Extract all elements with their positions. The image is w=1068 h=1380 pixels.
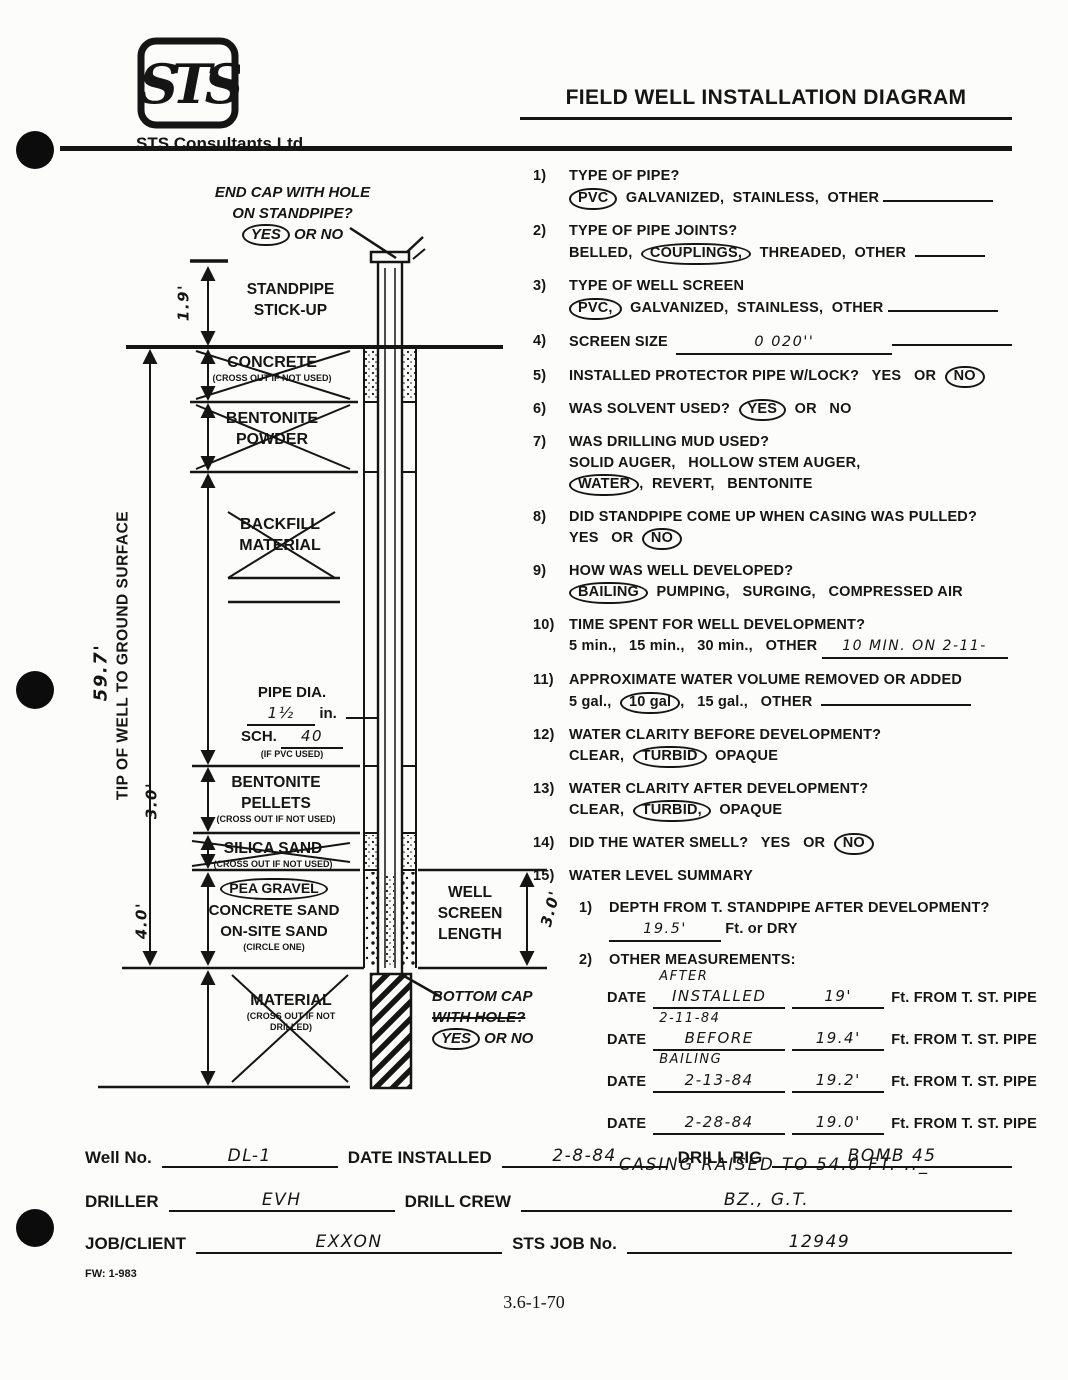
q8-title: DID STANDPIPE COME UP WHEN CASING WAS PU… [569, 507, 1063, 528]
ws-item1-number: 1) [579, 898, 609, 942]
measurement-row-4: DATE 2-28-84 19.0' Ft. FROM T. ST. PIPE [607, 1112, 1063, 1135]
q10-options: 5 min., 15 min., 30 min., OTHER 10 MIN. … [569, 636, 1063, 659]
q1-rest: GALVANIZED, STAINLESS, OTHER [626, 190, 879, 206]
pellets-note: (CROSS OUT IF NOT USED) [196, 814, 356, 825]
q13-pre: CLEAR, [569, 802, 624, 818]
material-note1: (CROSS OUT IF NOT [228, 1011, 354, 1022]
row4-depth-handwritten: 19.0' [792, 1112, 884, 1135]
question-14: 14)DID THE WATER SMELL? YES OR NO [533, 833, 1063, 855]
punch-hole [16, 671, 54, 709]
stickup-line1: STANDPIPE [228, 279, 353, 300]
driller-label: DRILLER [85, 1192, 159, 1212]
drill-rig-value-handwritten: BOMB 45 [772, 1146, 1012, 1168]
material-note2: DRILLED) [228, 1022, 354, 1033]
q2-options: BELLED, COUPLINGS, THREADED, OTHER [569, 242, 1063, 265]
q14-pre: YES OR [761, 835, 825, 851]
row3-date-entry: 2-13-84 [653, 1070, 785, 1093]
q12-title: WATER CLARITY BEFORE DEVELOPMENT? [569, 725, 1063, 746]
pellets-line1: BENTONITE [196, 772, 356, 793]
pea-gravel-circled: PEA GRAVEL [220, 878, 327, 900]
concrete-label: CONCRETE (CROSS OUT IF NOT USED) [196, 352, 348, 384]
sts-logo: STS [136, 36, 240, 135]
row4-main-handwritten: 2-28-84 [685, 1113, 754, 1131]
q2-title: TYPE OF PIPE JOINTS? [569, 221, 1063, 242]
q11-other-blank [821, 691, 971, 706]
q14-number: 14) [533, 833, 569, 855]
row1-depth-handwritten: 19' [792, 986, 884, 1009]
q5-label: INSTALLED PROTECTOR PIPE W/LOCK? [569, 368, 859, 384]
q11-title: APPROXIMATE WATER VOLUME REMOVED OR ADDE… [569, 670, 1063, 691]
q8-number: 8) [533, 507, 569, 550]
row1-suffix: Ft. FROM T. ST. PIPE [891, 988, 1037, 1009]
q1-number: 1) [533, 166, 569, 210]
date-installed-label: DATE INSTALLED [348, 1148, 492, 1168]
pipe-dia-label: PIPE DIA. [228, 682, 356, 703]
question-5: 5)INSTALLED PROTECTOR PIPE W/LOCK? YES O… [533, 366, 1063, 388]
silica-note: (CROSS OUT IF NOT USED) [192, 859, 354, 870]
backfill-line1: BACKFILL [212, 514, 348, 535]
well-no-label: Well No. [85, 1148, 152, 1168]
pellets-line2: PELLETS [196, 793, 356, 814]
q13-number: 13) [533, 779, 569, 822]
measurement-row-2: DATE 2-11-84BEFOREBAILING 19.4' Ft. FROM… [607, 1028, 1063, 1051]
end-cap-line2: ON STANDPIPE? [190, 203, 395, 224]
gravel-note: (CIRCLE ONE) [188, 942, 360, 953]
gravel-option3: ON-SITE SAND [188, 921, 360, 942]
q6-line: WAS SOLVENT USED? YES OR NO [569, 399, 1063, 421]
pipe-dia-value-line: 1½ in. [228, 703, 356, 726]
q7-options: WATER, REVERT, BENTONITE [569, 474, 1063, 496]
row3-depth-handwritten: 19.2' [792, 1070, 884, 1093]
question-7: 7)WAS DRILLING MUD USED?SOLID AUGER, HOL… [533, 432, 1063, 496]
bottom-cap-yes-circled: YES [432, 1028, 480, 1050]
company-name: STS Consultants Ltd. [136, 134, 308, 154]
bottom-cap-line2-struck: WITH HOLE? [432, 1007, 577, 1028]
material-name: MATERIAL [228, 990, 354, 1011]
q4-value-handwritten: 0 020'' [676, 332, 892, 355]
q2-number: 2) [533, 221, 569, 265]
drill-rig-label: DRILL RIG [678, 1148, 763, 1168]
screen-line1: WELL [422, 882, 518, 903]
q12-number: 12) [533, 725, 569, 768]
q4-label: SCREEN SIZE [569, 334, 668, 350]
ws-item1-value-handwritten: 19.5' [609, 919, 721, 942]
ws-item1-answer: 19.5' Ft. or DRY [609, 919, 1063, 942]
question-4: 4)SCREEN SIZE 0 020'' [533, 331, 1063, 355]
question-9: 9)HOW WAS WELL DEVELOPED?BAILING PUMPING… [533, 561, 1063, 604]
job-client-label: JOB/CLIENT [85, 1234, 186, 1254]
end-cap-line1: END CAP WITH HOLE [190, 182, 395, 203]
form-code: FW: 1-983 [85, 1268, 137, 1280]
q13-circled-option: TURBID, [633, 800, 711, 822]
bottom-cap-line1: BOTTOM CAP [432, 986, 577, 1007]
q12-pre: CLEAR, [569, 748, 624, 764]
q13-title: WATER CLARITY AFTER DEVELOPMENT? [569, 779, 1063, 800]
q9-circled-option: BAILING [569, 582, 648, 604]
row4-date-label: DATE [607, 1114, 646, 1135]
q7-number: 7) [533, 432, 569, 496]
q10-title: TIME SPENT FOR WELL DEVELOPMENT? [569, 615, 1063, 636]
row2-date-label: DATE [607, 1030, 646, 1051]
q6-number: 6) [533, 399, 569, 421]
q12-options: CLEAR, TURBID OPAQUE [569, 746, 1063, 768]
job-client-value-handwritten: EXXON [196, 1232, 502, 1254]
q10-number: 10) [533, 615, 569, 659]
pipe-sch-line: SCH. 40 [228, 726, 356, 749]
q2-other-blank [915, 242, 985, 257]
q9-number: 9) [533, 561, 569, 604]
row3-date-label: DATE [607, 1072, 646, 1093]
q2-pre: BELLED, [569, 245, 632, 261]
stickup-line2: STICK-UP [228, 300, 353, 321]
q12-rest: OPAQUE [715, 748, 778, 764]
q3-circled-option: PVC, [569, 298, 622, 320]
bottom-cap-label: BOTTOM CAP WITH HOLE? YES OR NO [432, 986, 577, 1050]
q7-rest: , REVERT, BENTONITE [639, 476, 812, 492]
row2-below-handwritten: BAILING [659, 1049, 722, 1070]
row2-date-entry: 2-11-84BEFOREBAILING [653, 1028, 785, 1051]
page-code: 3.6-1-70 [0, 1292, 1068, 1313]
material-label: MATERIAL (CROSS OUT IF NOT DRILLED) [228, 990, 354, 1033]
punch-hole [16, 131, 54, 169]
bentonite-powder-line1: BENTONITE [196, 408, 348, 429]
q11-number: 11) [533, 670, 569, 714]
gravel-option-circled: PEA GRAVEL [188, 878, 360, 900]
ws-item2: 2)OTHER MEASUREMENTS: [579, 950, 1063, 971]
question-6: 6)WAS SOLVENT USED? YES OR NO [533, 399, 1063, 421]
standpipe-stickup-label: STANDPIPE STICK-UP [228, 279, 353, 321]
bentonite-pellets-label: BENTONITE PELLETS (CROSS OUT IF NOT USED… [196, 772, 356, 825]
pipe-sch-value: 40 [281, 726, 343, 749]
q11-circled-option: 10 gal [620, 692, 680, 714]
row4-date-entry: 2-28-84 [653, 1112, 785, 1135]
question-10: 10)TIME SPENT FOR WELL DEVELOPMENT?5 min… [533, 615, 1063, 659]
q1-options: PVC GALVANIZED, STAINLESS, OTHER [569, 187, 1063, 210]
q14-line: DID THE WATER SMELL? YES OR NO [569, 833, 1063, 855]
footer-row-1: Well No. DL-1 DATE INSTALLED 2-8-84 DRIL… [85, 1146, 1012, 1168]
ws-item1-suffix: Ft. or DRY [721, 921, 798, 937]
q6-rest: OR NO [795, 401, 852, 417]
bottom-cap-or-no: OR NO [480, 1030, 533, 1047]
question-8: 8)DID STANDPIPE COME UP WHEN CASING WAS … [533, 507, 1063, 550]
silica-sand-label: SILICA SAND (CROSS OUT IF NOT USED) [192, 838, 354, 870]
concrete-name: CONCRETE [196, 352, 348, 373]
drill-crew-value-handwritten: BZ., G.T. [521, 1190, 1012, 1212]
q5-pre: YES OR [872, 368, 936, 384]
q9-rest: PUMPING, SURGING, COMPRESSED AIR [656, 584, 962, 600]
question-2: 2)TYPE OF PIPE JOINTS?BELLED, COUPLINGS,… [533, 221, 1063, 265]
q12-circled-option: TURBID [633, 746, 707, 768]
question-13: 13)WATER CLARITY AFTER DEVELOPMENT?CLEAR… [533, 779, 1063, 822]
driller-value-handwritten: EVH [169, 1190, 395, 1212]
q1-circled-option: PVC [569, 188, 617, 210]
pipe-spec-label: PIPE DIA. 1½ in. SCH. 40 (IF PVC USED) [228, 682, 356, 760]
row4-suffix: Ft. FROM T. ST. PIPE [891, 1114, 1037, 1135]
q13-rest: OPAQUE [719, 802, 782, 818]
bentonite-powder-line2: POWDER [196, 429, 348, 450]
q3-rest: GALVANIZED, STAINLESS, OTHER [630, 300, 883, 316]
q11-options: 5 gal., 10 gal, 15 gal., OTHER [569, 691, 1063, 714]
ws-item1: 1)DEPTH FROM T. STANDPIPE AFTER DEVELOPM… [579, 898, 1063, 942]
q8-circled-option: NO [642, 528, 682, 550]
drill-crew-label: DRILL CREW [405, 1192, 511, 1212]
question-11: 11)APPROXIMATE WATER VOLUME REMOVED OR A… [533, 670, 1063, 714]
silica-name: SILICA SAND [192, 838, 354, 859]
row3-suffix: Ft. FROM T. ST. PIPE [891, 1072, 1037, 1093]
tip-of-well-dimension: 59.7' [91, 640, 112, 706]
footer-row-2: DRILLER EVH DRILL CREW BZ., G.T. [85, 1190, 1012, 1212]
q6-label: WAS SOLVENT USED? [569, 401, 730, 417]
q10-value-handwritten: 10 MIN. ON 2-11- [822, 636, 1008, 659]
q3-number: 3) [533, 276, 569, 320]
q15-label: WATER LEVEL SUMMARY [569, 866, 1063, 887]
end-cap-question: END CAP WITH HOLE ON STANDPIPE? YES OR N… [190, 182, 395, 246]
row1-date-label: DATE [607, 988, 646, 1009]
pipe-note: (IF PVC USED) [228, 749, 356, 760]
question-12: 12)WATER CLARITY BEFORE DEVELOPMENT?CLEA… [533, 725, 1063, 768]
sts-job-label: STS JOB No. [512, 1234, 617, 1254]
q5-number: 5) [533, 366, 569, 388]
well-no-value-handwritten: DL-1 [162, 1146, 338, 1168]
q9-title: HOW WAS WELL DEVELOPED? [569, 561, 1063, 582]
pellets-dimension: 3.0' [142, 771, 163, 831]
measurement-row-1: DATE AFTERINSTALLED 19' Ft. FROM T. ST. … [607, 986, 1063, 1009]
questions-panel: 1)TYPE OF PIPE?PVC GALVANIZED, STAINLESS… [533, 166, 1063, 1175]
q7-line2: SOLID AUGER, HOLLOW STEM AUGER, [569, 453, 1063, 474]
q4-line: SCREEN SIZE 0 020'' [569, 331, 1063, 355]
header-rule [60, 146, 1012, 151]
gravel-dimension: 4.0' [132, 891, 153, 951]
q9-options: BAILING PUMPING, SURGING, COMPRESSED AIR [569, 582, 1063, 604]
row2-depth-handwritten: 19.4' [792, 1028, 884, 1051]
ws-item2-number: 2) [579, 950, 609, 971]
measurement-row-3: DATE 2-13-84 19.2' Ft. FROM T. ST. PIPE [607, 1070, 1063, 1093]
scanned-form-page: STS STS Consultants Ltd. FIELD WELL INST… [0, 0, 1068, 1380]
q6-circled-option: YES [739, 399, 787, 421]
q3-other-blank [888, 297, 998, 312]
sts-job-value-handwritten: 12949 [627, 1232, 1012, 1254]
q3-title: TYPE OF WELL SCREEN [569, 276, 1063, 297]
row2-above-handwritten: 2-11-84 [659, 1008, 720, 1029]
screen-line2: SCREEN [422, 903, 518, 924]
row2-suffix: Ft. FROM T. ST. PIPE [891, 1030, 1037, 1051]
q3-options: PVC, GALVANIZED, STAINLESS, OTHER [569, 297, 1063, 320]
backfill-label: BACKFILL MATERIAL [212, 514, 348, 556]
end-cap-answer: YES OR NO [190, 224, 395, 246]
q1-other-blank [883, 187, 993, 202]
row1-date-entry: AFTERINSTALLED [653, 986, 785, 1009]
q8-options: YES OR NO [569, 528, 1063, 550]
q7-title: WAS DRILLING MUD USED? [569, 432, 1063, 453]
q13-options: CLEAR, TURBID, OPAQUE [569, 800, 1063, 822]
row1-main-handwritten: INSTALLED [672, 987, 766, 1005]
q14-label: DID THE WATER SMELL? [569, 835, 748, 851]
page-title: FIELD WELL INSTALLATION DIAGRAM [520, 86, 1012, 120]
end-cap-or-no: OR NO [290, 226, 343, 243]
concrete-note: (CROSS OUT IF NOT USED) [196, 373, 348, 384]
backfill-line2: MATERIAL [212, 535, 348, 556]
question-15: 15)WATER LEVEL SUMMARY [533, 866, 1063, 887]
punch-hole [16, 1209, 54, 1247]
q14-circled-option: NO [834, 833, 874, 855]
question-3: 3)TYPE OF WELL SCREENPVC, GALVANIZED, ST… [533, 276, 1063, 320]
date-installed-value-handwritten: 2-8-84 [502, 1146, 668, 1168]
row2-main-handwritten: BEFORE [685, 1029, 754, 1047]
screen-line3: LENGTH [422, 924, 518, 945]
gravel-option2: CONCRETE SAND [188, 900, 360, 921]
q10-pre: 5 min., 15 min., 30 min., OTHER [569, 638, 817, 654]
q11-rest: , 15 gal., OTHER [680, 694, 812, 710]
bentonite-powder-label: BENTONITE POWDER [196, 408, 348, 450]
row3-main-handwritten: 2-13-84 [685, 1071, 754, 1089]
pipe-dia-value: 1½ [247, 703, 315, 726]
pipe-sch-label: SCH. [241, 728, 281, 745]
q2-rest: THREADED, OTHER [760, 245, 907, 261]
q5-circled-option: NO [945, 366, 985, 388]
question-1: 1)TYPE OF PIPE?PVC GALVANIZED, STAINLESS… [533, 166, 1063, 210]
q5-line: INSTALLED PROTECTOR PIPE W/LOCK? YES OR … [569, 366, 1063, 388]
logo-text: STS [139, 52, 240, 116]
end-cap-yes-circled: YES [242, 224, 290, 246]
q1-title: TYPE OF PIPE? [569, 166, 1063, 187]
gravel-options-label: PEA GRAVEL CONCRETE SAND ON-SITE SAND (C… [188, 878, 360, 953]
ws-item1-question: DEPTH FROM T. STANDPIPE AFTER DEVELOPMEN… [609, 898, 1063, 919]
well-screen-length-label: WELL SCREEN LENGTH [422, 882, 518, 945]
row1-above-handwritten: AFTER [659, 966, 708, 987]
pipe-dia-unit: in. [315, 705, 337, 722]
tip-of-well-label: TIP OF WELL TO GROUND SURFACE [113, 488, 134, 824]
q2-circled-option: COUPLINGS, [641, 243, 751, 265]
stickup-dimension: 1.9' [174, 271, 195, 335]
bottom-cap-answer: YES OR NO [432, 1028, 577, 1050]
q8-pre: YES OR [569, 530, 633, 546]
q11-pre: 5 gal., [569, 694, 612, 710]
q7-circled-option: WATER [569, 474, 639, 496]
q4-number: 4) [533, 331, 569, 355]
footer-row-3: JOB/CLIENT EXXON STS JOB No. 12949 [85, 1232, 1012, 1254]
water-level-summary: 1)DEPTH FROM T. STANDPIPE AFTER DEVELOPM… [533, 898, 1063, 1175]
q4-blank [892, 331, 1012, 346]
